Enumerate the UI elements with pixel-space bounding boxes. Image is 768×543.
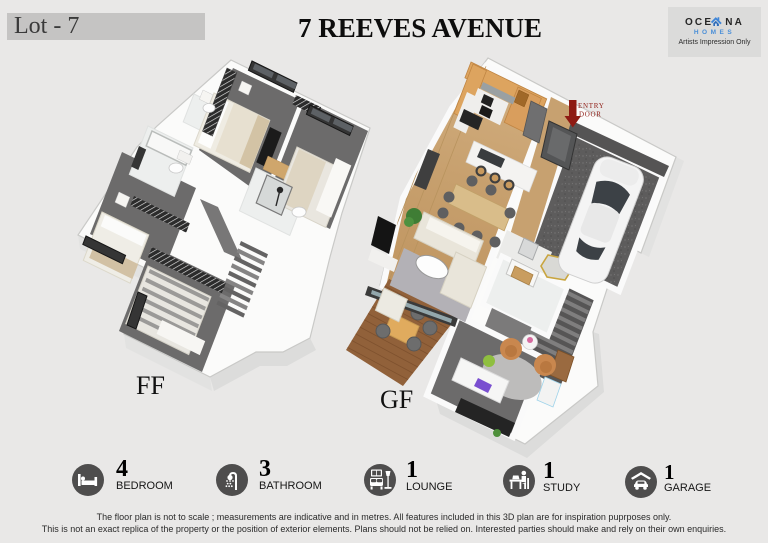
svg-text:DOOR: DOOR bbox=[579, 111, 602, 119]
svg-text:FF: FF bbox=[136, 371, 165, 400]
svg-text:ENTRY: ENTRY bbox=[578, 102, 604, 110]
svg-text:GF: GF bbox=[380, 385, 413, 414]
